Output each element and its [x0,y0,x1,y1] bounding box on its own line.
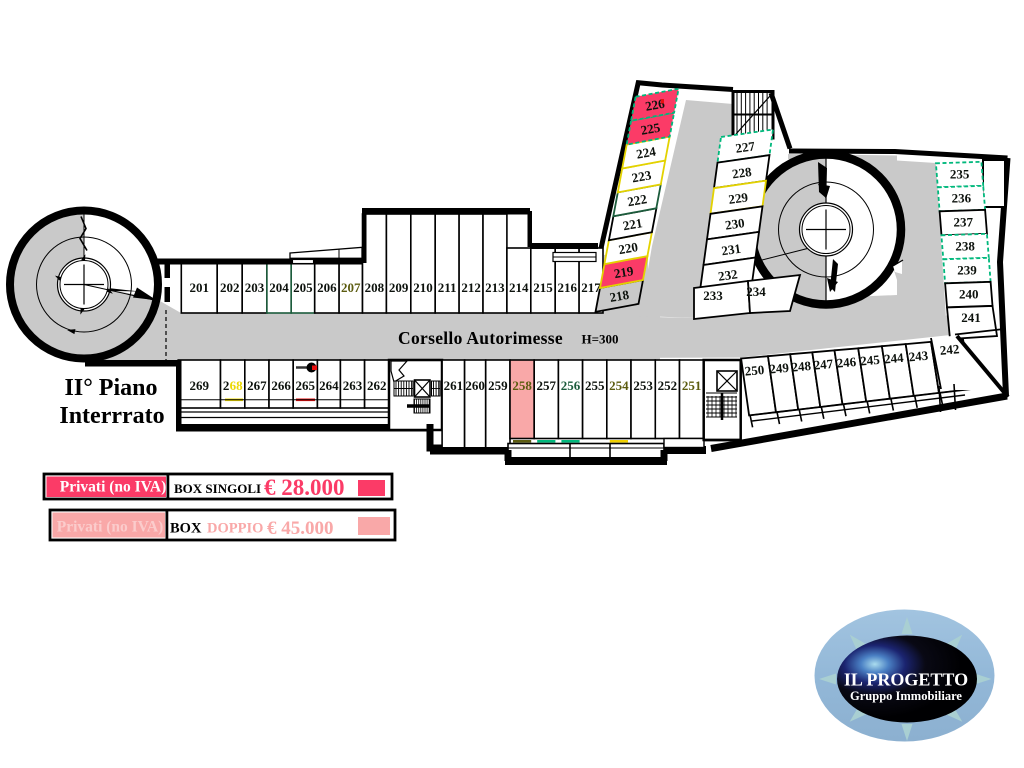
svg-text:212: 212 [461,280,481,295]
svg-text:260: 260 [465,378,485,393]
svg-text:BOX: BOX [170,521,202,537]
svg-text:210: 210 [413,280,433,295]
svg-text:250: 250 [744,362,765,379]
svg-text:Privati (no IVA): Privati (no IVA) [57,519,164,536]
svg-text:242: 242 [939,341,960,358]
svg-text:201: 201 [189,280,209,295]
svg-text:II° Piano: II° Piano [65,375,158,401]
svg-text:252: 252 [658,378,678,393]
svg-text:246: 246 [836,354,857,371]
svg-text:202: 202 [220,280,240,295]
svg-text:211: 211 [438,280,457,295]
svg-text:261: 261 [444,378,464,393]
svg-text:€ 45.000: € 45.000 [267,518,334,539]
svg-text:206: 206 [317,280,337,295]
svg-text:248: 248 [791,358,812,375]
svg-text:256: 256 [561,378,581,393]
svg-text:H=300: H=300 [581,332,618,347]
svg-text:259: 259 [488,378,508,393]
svg-text:205: 205 [293,280,313,295]
svg-text:216: 216 [557,280,577,295]
svg-text:232: 232 [717,266,738,284]
svg-text:236: 236 [952,191,972,206]
svg-text:233: 233 [703,288,723,303]
svg-text:DOPPIO: DOPPIO [207,521,263,537]
svg-text:229: 229 [728,189,750,207]
svg-text:237: 237 [954,215,974,230]
svg-text:263: 263 [343,378,363,393]
svg-text:247: 247 [813,356,834,373]
svg-text:Interrrato: Interrrato [59,403,164,429]
svg-text:227: 227 [735,138,757,156]
svg-text:244: 244 [883,350,904,367]
svg-text:231: 231 [721,241,742,259]
svg-text:68: 68 [230,378,244,393]
svg-text:267: 267 [247,378,267,393]
svg-text:238: 238 [955,239,975,254]
svg-text:243: 243 [908,348,929,365]
svg-text:230: 230 [724,215,745,233]
svg-text:265: 265 [296,378,316,393]
svg-text:207: 207 [341,280,361,295]
svg-text:254: 254 [609,378,629,393]
svg-text:241: 241 [961,310,981,325]
svg-text:239: 239 [957,263,977,278]
svg-text:203: 203 [245,280,265,295]
svg-text:235: 235 [950,167,970,182]
svg-text:2: 2 [223,378,230,393]
svg-text:213: 213 [485,280,505,295]
svg-text:204: 204 [269,280,289,295]
svg-text:251: 251 [682,378,702,393]
svg-text:Privati (no IVA): Privati (no IVA) [60,479,167,496]
svg-text:€ 28.000: € 28.000 [264,475,345,500]
svg-text:257: 257 [537,378,557,393]
svg-text:208: 208 [365,280,385,295]
svg-text:228: 228 [731,164,753,182]
svg-text:214: 214 [509,280,529,295]
svg-text:266: 266 [271,378,291,393]
svg-text:264: 264 [319,378,339,393]
svg-text:215: 215 [533,280,553,295]
svg-text:240: 240 [959,287,979,302]
svg-text:269: 269 [190,378,210,393]
svg-text:253: 253 [633,378,653,393]
svg-text:258: 258 [512,378,532,393]
svg-text:245: 245 [860,352,881,369]
svg-text:209: 209 [389,280,409,295]
svg-text:Gruppo Immobiliare: Gruppo Immobiliare [850,689,962,703]
svg-text:IL PROGETTO: IL PROGETTO [844,670,968,690]
svg-text:255: 255 [585,378,605,393]
svg-text:234: 234 [746,284,766,299]
svg-text:249: 249 [769,360,790,377]
svg-text:262: 262 [367,378,387,393]
svg-text:Corsello Autorimesse: Corsello Autorimesse [398,328,563,348]
svg-text:BOX SINGOLI: BOX SINGOLI [174,481,261,496]
